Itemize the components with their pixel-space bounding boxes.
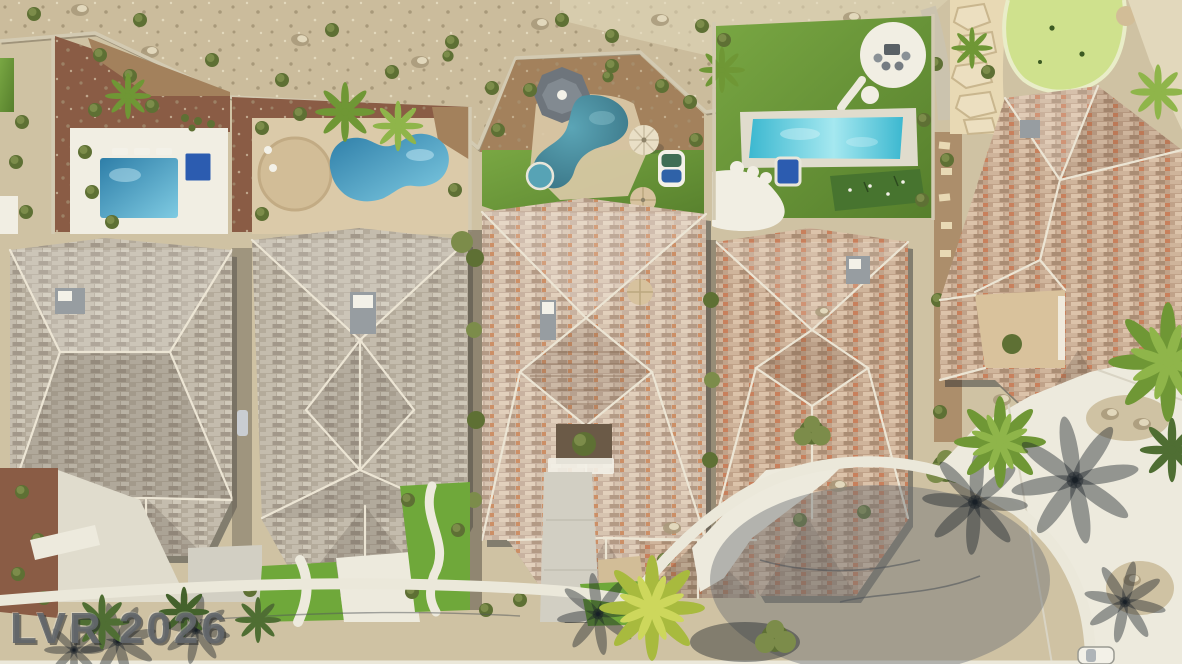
palm-tree [105, 73, 151, 119]
palm-tree [235, 597, 281, 643]
bright-palm [599, 555, 705, 661]
aerial-scene [0, 0, 1182, 664]
lap-pool [749, 117, 903, 159]
palm-tree [951, 27, 992, 68]
culdesac-palm [954, 396, 1046, 488]
entry-courtyard [975, 290, 1065, 368]
parked-car [1078, 647, 1114, 664]
spa-a [184, 152, 212, 182]
aerial-photo: LVR 2026 [0, 0, 1182, 664]
spa-d [776, 158, 800, 185]
lounger [156, 148, 172, 155]
pergola-beam [548, 458, 614, 474]
palm-tree [315, 82, 375, 142]
watermark: LVR 2026 [10, 604, 229, 654]
palm-tree [699, 47, 745, 93]
lounger [112, 148, 128, 155]
chimney [1020, 120, 1040, 138]
courtyard-umbrella [627, 279, 653, 305]
spa-c [527, 163, 553, 189]
trampoline [658, 150, 685, 187]
rectangular-pool [100, 158, 178, 218]
circular-patio [860, 22, 926, 88]
palm-tree [373, 101, 424, 152]
lounger [134, 148, 150, 155]
